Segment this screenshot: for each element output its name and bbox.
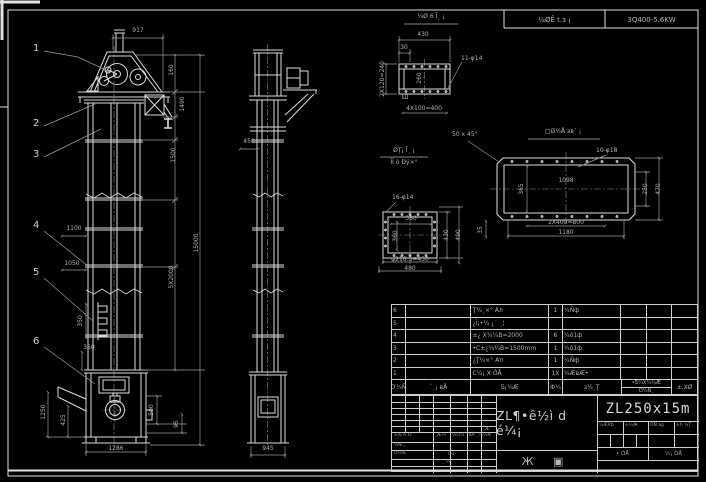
bom-row-4: 4 ±¿ X¾¼В=2000 6 ¼ô1ф [392,329,697,342]
grid-line [467,396,468,473]
bom-wt-unit [620,305,646,317]
front-view-linework [58,30,172,443]
bom-qty: 1X [548,368,562,380]
dim-480: 480 [404,266,415,272]
bom-wt-unit [620,343,646,355]
callout-16-phi14: 16-φ14 [392,195,413,201]
chamfer-note: 50 x 45° [452,132,478,138]
bom-header-weight: •Ƽ¼X¼¾Æ Ó¼Ñ¸ [621,380,672,394]
bom-header-code: ˊ¸¡ вÅ [405,380,471,394]
bom-header-mat: з¼¸Ţ [562,380,621,394]
dim-450: 450 [243,139,254,145]
rev-header-date: ¸Æ [483,428,490,433]
dim-430-top: 430 [417,32,428,38]
grid-line [674,421,675,447]
dim-1286: 1286 [108,446,123,452]
dim-365: 365 [519,183,525,194]
bom-wt-unit [620,330,646,342]
balloon-2: 2 [33,119,39,129]
bom-mat: ¼ô1ф [562,330,621,342]
detail-top-title: ¼Ø 6 Ī¸ ¡ [417,14,444,20]
grid-line [419,396,420,432]
bom-no: 6 [392,305,405,317]
bom-remark [671,330,697,342]
dim-5x2000: 5X2000 [169,265,175,288]
bom-no: 3 [392,343,405,355]
stage-header-4: ±h ¼Ţ [676,424,691,429]
dim-350-bucket: 350 [78,315,84,326]
drawing-subtitle: Ж ▣ [496,450,597,473]
detail-title-underlines [380,24,600,157]
cad-drawing-sheet: ¼ØÊ t.з ¡ 3Q400-5.6KW 1 2 3 4 5 6 917 16… [0,0,706,482]
dim-360: 360 [393,230,399,241]
detail-square-title-2: ĪĬ ò Đý×° [390,160,417,166]
bom-mat [562,318,621,330]
bom-wt-total [646,368,671,380]
bom-table: 6 Ţ¼¸×° Ал 1 ¼Ñф 5 ¿Ì¡•¼ ¿ˊ ¸¦ 4 ±¿ X¾¼В… [391,304,698,395]
bom-wt-unit [620,318,646,330]
dim-2x400: 2X400=800 [548,220,584,226]
drawing-title: ZL¶•ê½ì d é¼¡ [496,396,597,450]
sheet-header-cell-1: ¼ØÊ t.з ¡ [504,11,605,28]
bom-wt-total [646,318,671,330]
bom-no: 1 [392,368,405,380]
title-block: ±Æ¼ Ó ¸Æ¼ ¼Ó¼ вÅ ¸¼ ¼Ñ ¸Æ ¼Ñ ¸ Ó¼Æ Óü ¸ … [391,395,698,472]
dim-30: 30 [400,45,408,51]
dim-490: 490 [456,229,462,240]
smudge-artifact [298,403,316,425]
bom-qty: 6 [548,330,562,342]
dim-250: 250 [643,183,649,194]
bom-mat: ¼Ñф [562,355,621,367]
bom-header-name: Ƽ¡¾Æ [470,380,547,394]
bom-mat: ¼ô1ф [562,343,621,355]
balloon-4: 4 [33,221,39,231]
model-number: ZL250x15m [597,396,699,421]
rev-header-zone: ¼Ó¼ [452,434,464,439]
dim-945: 945 [262,446,273,452]
bom-qty: 1 [548,305,562,317]
bom-code [405,355,471,367]
grid-line [623,421,624,447]
bom-name: ±¿ X¾¼В=2000 [470,330,547,342]
sig-design: ¼Ñ ¸ [394,444,405,449]
grid-line [610,434,611,447]
sheet-count-current: ¼¡ ÓÅ [648,447,699,460]
dim-2x120: 2X120=240 [380,61,386,97]
bom-mat: ¼Ñф [562,305,621,317]
dim-425: 425 [61,414,67,425]
bom-remark [671,368,697,380]
bom-row-1: 1 С¼¡ X ÓÅ 1X ¼ÆвÆ• [392,367,697,380]
bom-no: 4 [392,330,405,342]
callout-10-phi18: 10-φ18 [596,148,617,154]
bom-wt-total [646,343,671,355]
bom-header-weight-bottom: Ó¼Ñ¸ [622,387,672,395]
bom-header-qty: Ф¼ [548,380,562,394]
dim-1500: 1500 [171,147,177,162]
dim-4x100: 4X100=400 [406,106,442,112]
bom-remark [671,305,697,317]
dim-430-sq: 430 [444,229,450,240]
side-view-linework [247,50,317,443]
balloon-1: 1 [33,44,39,54]
bom-wt-total [646,305,671,317]
bom-row-2: 2 ¿Ţ¼×° Ал 1 ¼Ñф [392,354,697,367]
dim-350-boot: 350 [83,345,94,351]
bom-name: •С±¿¾¼В=1500mm [470,343,547,355]
bom-remark [671,355,697,367]
stage-header-3: ÓÑ вg [650,424,664,429]
bom-wt-total [646,355,671,367]
dim-1050: 1050 [64,261,79,267]
bom-code [405,305,471,317]
bom-qty [548,318,562,330]
bom-wt-unit [620,368,646,380]
balloon-5: 5 [33,268,39,278]
balloon-3: 3 [33,150,39,160]
dim-260: 260 [417,72,423,83]
bom-row-5: 5 ¿Ì¡•¼ ¿ˊ ¸¦ [392,317,697,330]
weld-mark: Ш [402,95,408,101]
detail-long-title: □Ø½Å эвˊ ¡ [545,129,581,135]
bom-code [405,343,471,355]
bom-row-6: 6 Ţ¼¸×° Ал 1 ¼Ñф [392,305,697,317]
sheet-count-total: • ÓÅ [597,447,648,460]
dim-15000: 15000 [194,233,200,252]
dim-1098: 1098 [558,178,573,184]
bom-qty: 1 [548,343,562,355]
grid-line [636,434,637,447]
dim-35: 35 [478,226,484,234]
rev-header-doc: вÅ ¸¼ [469,434,483,439]
bom-header-row: Ơ¼Ñ ˊ¸¡ вÅ Ƽ¡¾Æ Ф¼ з¼¸Ţ •Ƽ¼X¼¾Æ Ó¼Ñ¸ ±,X… [392,379,697,394]
grid-line [433,396,434,473]
stage-header-2: ±¼Ж [625,424,638,429]
dim-470: 470 [656,183,662,194]
bom-name: ¿Ţ¼×° Ал [470,355,547,367]
sig-extra: Óü [448,453,454,458]
rev-header-count: ¸Æ¼ [435,434,446,439]
bom-wt-unit [620,355,646,367]
bom-row-3: 3 •С±¿¾¼В=1500mm 1 ¼ô1ф [392,342,697,355]
bom-mat: ¼ÆвÆ• [562,368,621,380]
bom-wt-total [646,330,671,342]
bom-code [405,330,471,342]
dim-500: 500 [149,404,155,415]
dim-1490: 1490 [180,96,186,111]
detail-square-title-1: ØŢ¡ Ī¸ ¡ [393,148,415,154]
bom-code [405,368,471,380]
bom-remark [671,318,697,330]
bom-name: ¿Ì¡•¼ ¿ˊ ¸¦ [470,318,547,330]
dim-1250: 1250 [41,404,47,419]
dim-380: 380 [405,216,416,222]
bom-name: Ţ¼¸×° Ал [470,305,547,317]
sig-check: Ó¼Æ [394,452,406,457]
dim-160: 160 [169,64,175,75]
callout-11-phi14: 11-φ14 [461,56,482,62]
dim-95: 95 [174,420,180,428]
grid-line [405,396,406,432]
bom-no: 5 [392,318,405,330]
bom-name: С¼¡ X ÓÅ [470,368,547,380]
bom-remark [671,343,697,355]
sig-approve: ¸ ¼¸ [442,461,452,466]
dim-917: 917 [132,28,143,34]
dim-phi216: φ216.3=430 [391,257,429,263]
grid-line [597,460,699,461]
rev-header-mark: ±Æ¼ Ó [394,434,412,439]
balloon-6: 6 [33,337,39,347]
bom-no: 2 [392,355,405,367]
sheet-header-cell-2: 3Q400-5.6KW [605,11,698,28]
stage-header-1: ¼ÆRb [599,424,614,429]
dim-1180: 1180 [558,230,573,236]
bom-header-no: Ơ¼Ñ [392,380,405,394]
dim-1100: 1100 [66,226,81,232]
bom-qty: 1 [548,355,562,367]
bom-code [405,318,471,330]
rev-header-sign: ¼Ñ [483,434,491,439]
bom-header-remark: ±,XØ [671,380,697,394]
